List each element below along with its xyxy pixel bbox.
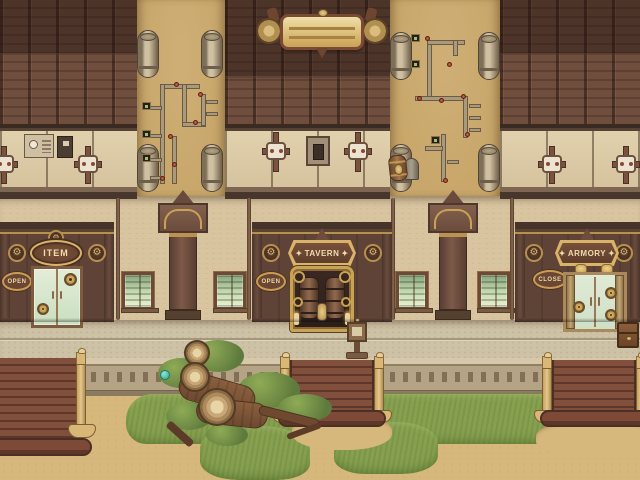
pipe-network-left [148, 78, 220, 190]
gear-icon [605, 287, 617, 299]
sign-ornament: ✦ [295, 249, 302, 258]
rooftop-banner [254, 2, 390, 62]
scroll-ornament [293, 297, 303, 307]
pilaster [515, 234, 525, 318]
shop-window [122, 272, 154, 310]
shop-window [478, 272, 510, 310]
portal-column [426, 190, 480, 322]
banner-finial [318, 9, 328, 17]
downspout [247, 198, 251, 320]
gear-icon: ⚙ [262, 244, 280, 262]
pilaster [382, 234, 392, 318]
downspout [510, 198, 514, 320]
sign-ornament: ✦ [559, 249, 566, 258]
armory-sign: ✦ ARMORY ✦ [555, 240, 619, 266]
vent-core [348, 142, 368, 160]
item-shop-facade: ⚙ ⚙ ⚙ ITEM OPEN [0, 222, 114, 322]
vent-core [266, 142, 286, 160]
log-cut-end [180, 362, 210, 392]
roof-vent [344, 132, 372, 172]
sign-ornament: ✦ [608, 249, 615, 258]
vent-core [616, 155, 636, 173]
rooftop-machine [24, 134, 54, 158]
door-handle [590, 297, 592, 306]
gear-icon: ⚙ [364, 244, 382, 262]
door-handle [598, 297, 600, 306]
banner-gear-icon [256, 18, 282, 44]
item-shop-sign: ITEM [30, 240, 82, 266]
armory-status-sign: CLOSE [533, 270, 567, 289]
vent-core [78, 155, 98, 173]
roof-vent [612, 146, 640, 184]
standpipe [201, 30, 223, 78]
banner-bracket [316, 48, 328, 58]
armory-sign-label: ARMORY [568, 249, 606, 258]
roof-vent [74, 146, 102, 184]
scroll-ornament [339, 271, 351, 283]
door-handle [52, 291, 54, 299]
barrel[interactable] [388, 154, 409, 182]
gear-icon: ⚙ [8, 244, 26, 262]
scroll-ornament [341, 297, 351, 307]
armory-facade: ⚙ ⚙ ✦ ARMORY ✦ CLOSE [515, 222, 640, 322]
panel-window [63, 141, 69, 146]
stairs-left[interactable] [0, 350, 114, 466]
roof-left-ridge [0, 0, 137, 55]
pilaster [104, 234, 114, 318]
vent-bolt [91, 162, 95, 166]
vent-bolt [546, 162, 550, 166]
tavern-status-sign: OPEN [256, 272, 286, 291]
facade-shadow [252, 318, 392, 322]
chest-pull [626, 336, 632, 341]
log-cut-end [198, 388, 236, 426]
fallen-log-foliage [140, 336, 340, 452]
roof-vent [0, 146, 18, 184]
small-chest[interactable] [617, 322, 639, 348]
gear-icon [573, 301, 585, 313]
vent-bolt [620, 162, 624, 166]
dial-icon [29, 140, 38, 149]
cornice [515, 222, 640, 234]
downspout [116, 198, 120, 320]
roof-vent [262, 132, 290, 172]
shop-window [214, 272, 246, 310]
gear-icon [37, 303, 49, 315]
platform-trim [500, 187, 640, 199]
vent-bolt [279, 149, 283, 153]
vent-bolt [82, 162, 86, 166]
hatch-door [313, 144, 324, 160]
sign-ornament: ✦ [341, 249, 348, 258]
tavern-sign: ✦ TAVERN ✦ [288, 240, 356, 266]
rooftop-panel [57, 136, 73, 158]
facade-shadow [0, 318, 114, 322]
tavern-facade: ⚙ ⚙ ✦ TAVERN ✦ OPEN [252, 222, 392, 322]
vent-bolt [361, 149, 365, 153]
scroll-ornament [293, 271, 305, 283]
stairs-right[interactable] [534, 352, 640, 430]
vent-bolt [629, 162, 633, 166]
standpipe [137, 30, 159, 78]
tavern-sign-label: TAVERN [305, 249, 340, 258]
stand-paper [352, 327, 362, 336]
berry [160, 370, 170, 380]
vent-core [542, 155, 562, 173]
roof-hatch[interactable] [306, 136, 330, 166]
banner-board [280, 14, 364, 50]
roof-right-ridge [500, 0, 640, 55]
gear-icon [64, 273, 77, 286]
vent-bolt [352, 149, 356, 153]
gear-icon: ⚙ [525, 244, 543, 262]
roof-vent [538, 146, 566, 184]
vent-bolt [270, 149, 274, 153]
shop-window [396, 272, 428, 310]
banner-gear-icon [362, 18, 388, 44]
vent-bolt [555, 162, 559, 166]
item-shop-status-sign: OPEN [2, 272, 32, 291]
door-handle [60, 291, 62, 299]
pilaster [630, 234, 640, 318]
vent-slots [42, 140, 51, 153]
game-viewport: ⚙ ⚙ ⚙ ITEM OPEN ⚙ ⚙ ✦ TAVERN ✦ [0, 0, 640, 480]
vent-bolt [7, 162, 11, 166]
portal-column [156, 190, 210, 322]
gear-icon: ⚙ [88, 244, 106, 262]
